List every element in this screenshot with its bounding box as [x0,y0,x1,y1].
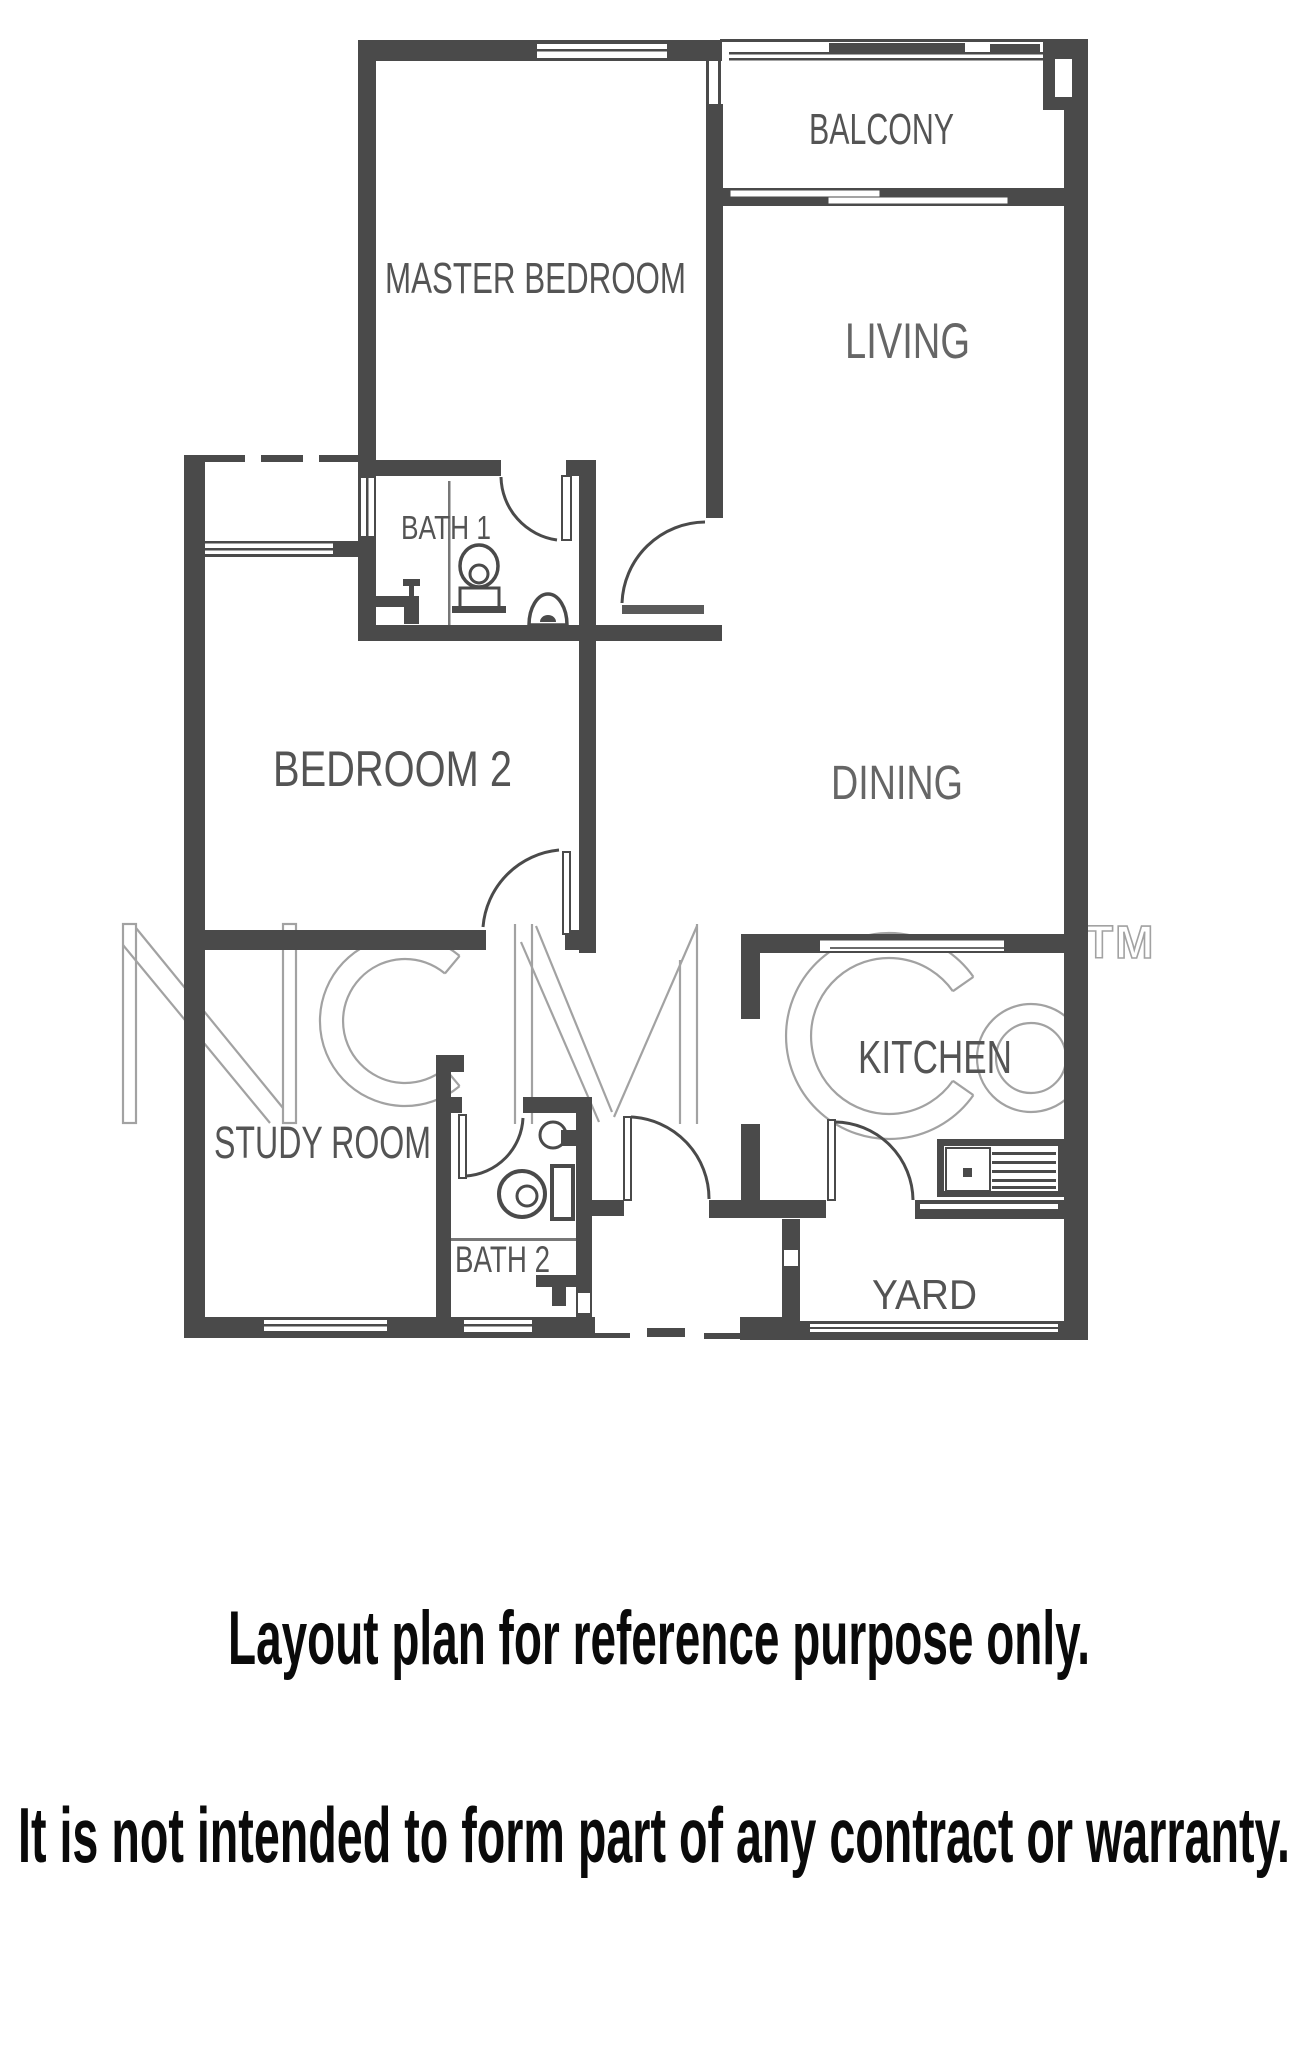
svg-text:MASTER BEDROOM: MASTER BEDROOM [385,254,686,303]
svg-text:LIVING: LIVING [845,313,970,369]
svg-text:BEDROOM 2: BEDROOM 2 [273,741,512,797]
svg-text:BATH 2: BATH 2 [455,1239,550,1280]
svg-text:DINING: DINING [831,757,963,810]
svg-text:STUDY ROOM: STUDY ROOM [214,1117,431,1168]
svg-text:Layout plan for reference purp: Layout plan for reference purpose only. [228,1596,1090,1681]
svg-text:KITCHEN: KITCHEN [858,1031,1012,1083]
svg-text:BALCONY: BALCONY [809,105,954,154]
svg-text:TM: TM [1085,916,1155,968]
svg-text:It is not intended to form par: It is not intended to form part of any c… [18,1791,1290,1879]
svg-text:BATH 1: BATH 1 [401,509,491,546]
svg-text:YARD: YARD [872,1271,977,1318]
